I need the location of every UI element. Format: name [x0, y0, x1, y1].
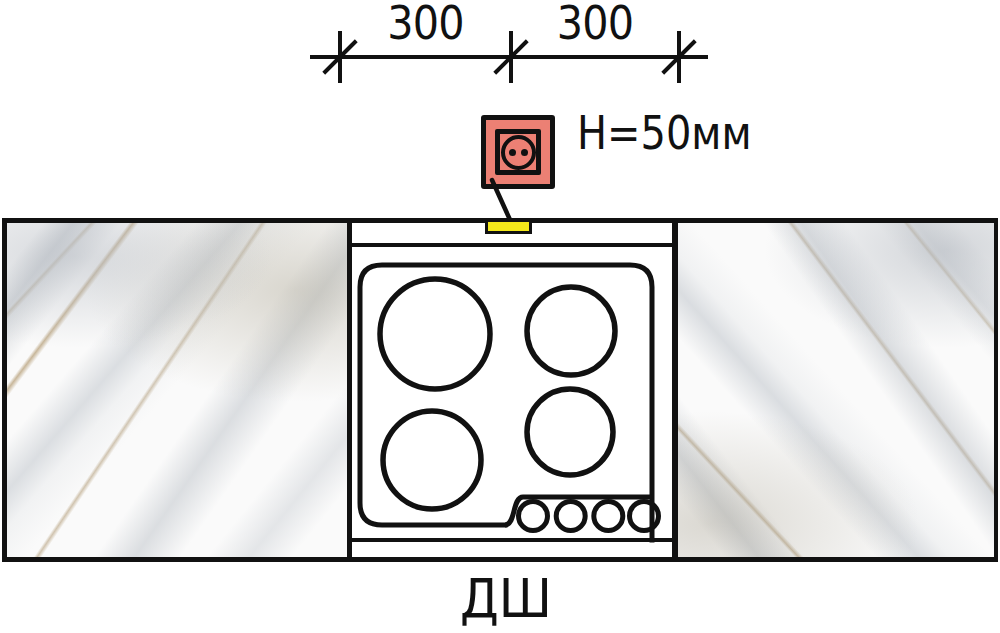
outlet-inner-square [495, 129, 541, 175]
hob-drawing [347, 218, 678, 562]
outlet-pin-left [509, 149, 516, 156]
dimension-value-left: 300 [350, 0, 500, 48]
outlet-pin-right [521, 149, 528, 156]
bottom-label: ДШ [414, 570, 598, 630]
socket-position-marker [485, 219, 532, 234]
knob-3 [594, 502, 623, 531]
marble-panel-left [2, 218, 347, 562]
knob-1 [519, 502, 548, 531]
marble-panel-right [678, 218, 998, 562]
burner-bottom-right [527, 389, 613, 475]
power-outlet-icon [481, 115, 555, 189]
kitchen-hob-installation-drawing: 300 300 H=50мм [0, 0, 1000, 633]
burner-top-left [380, 279, 490, 389]
burner-top-right [527, 287, 615, 375]
dimension-value-right: 300 [521, 0, 669, 48]
outlet-face-circle [501, 135, 536, 170]
knob-2 [556, 502, 585, 531]
burner-bottom-left [383, 411, 481, 509]
socket-height-label: H=50мм [577, 107, 752, 159]
